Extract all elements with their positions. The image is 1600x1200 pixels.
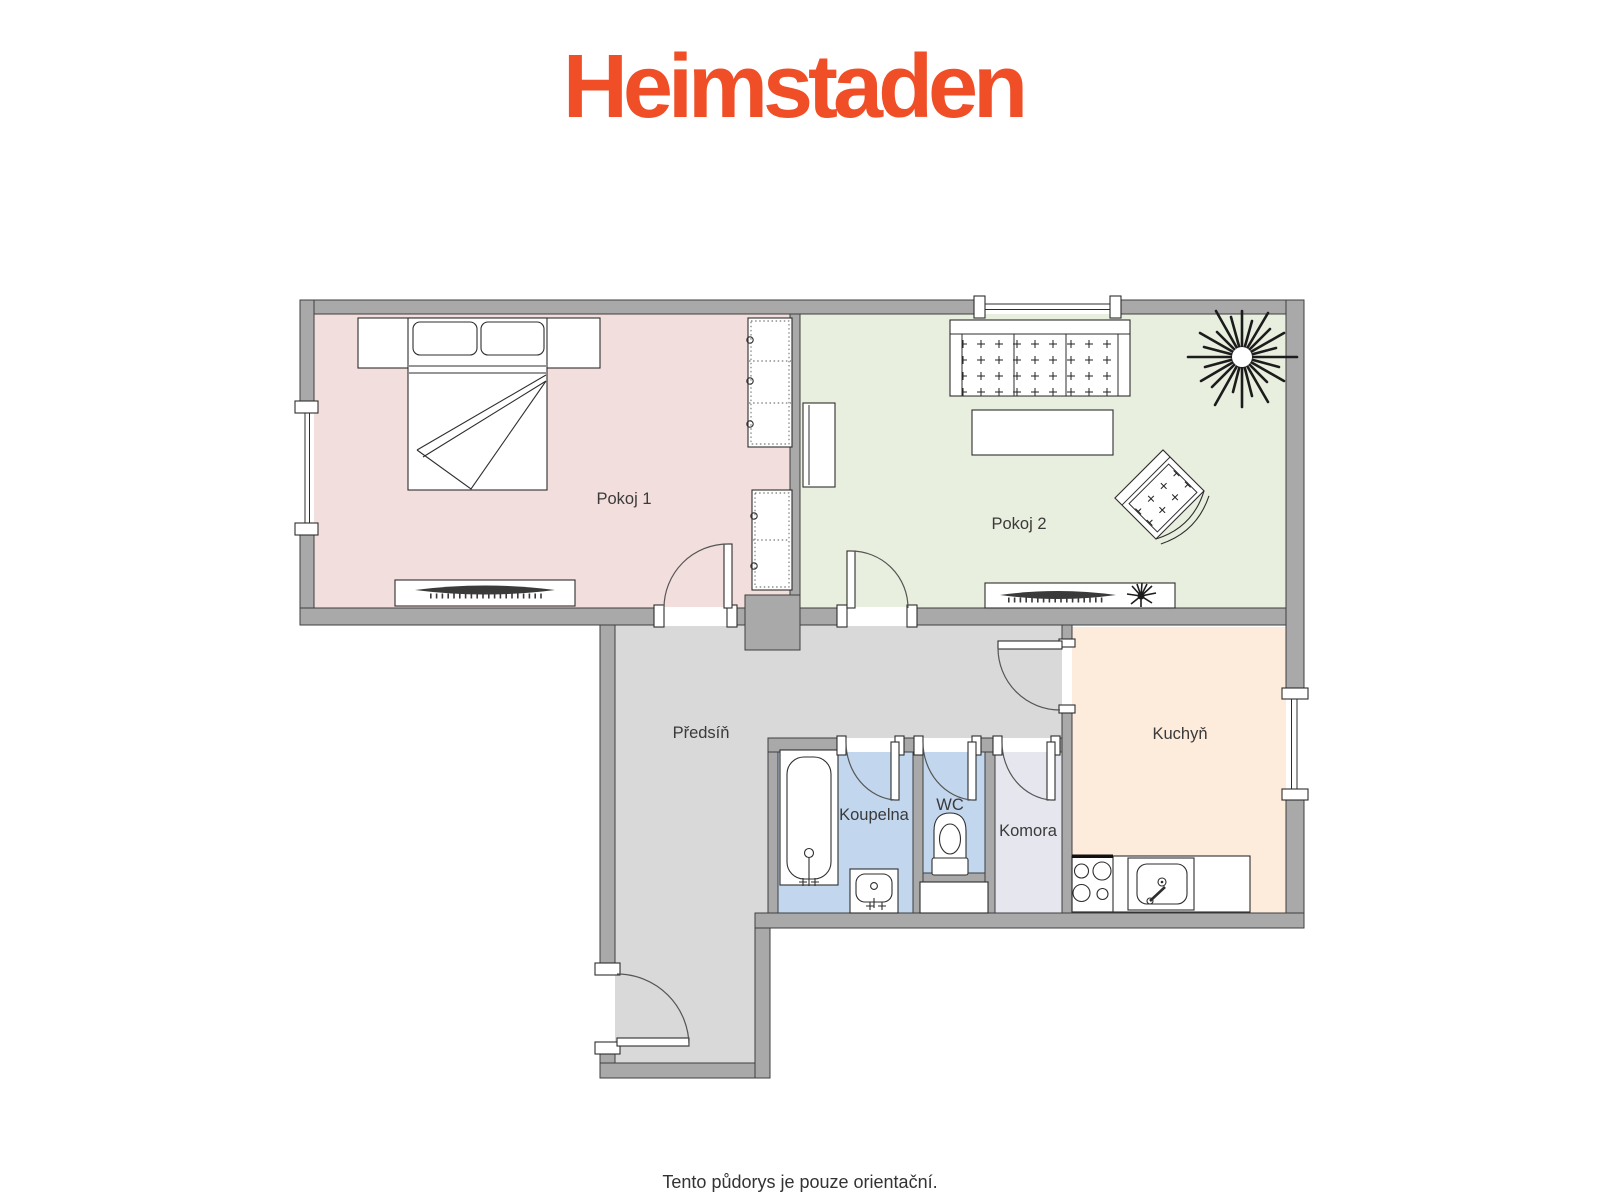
kitchen-counter — [1072, 855, 1250, 913]
radiator — [395, 580, 575, 606]
label-komora: Komora — [999, 822, 1058, 840]
coffee-table — [972, 410, 1113, 455]
cabinet — [803, 403, 835, 487]
page: Heimstaden — [0, 0, 1600, 1200]
caption: Tento půdorys je pouze orientační. — [0, 1172, 1600, 1193]
label-wc: WC — [936, 796, 964, 814]
radiator — [985, 583, 1175, 608]
duct-shaft — [920, 882, 988, 913]
label-pokoj-2: Pokoj 2 — [991, 515, 1046, 533]
washbasin — [850, 869, 898, 913]
label-kuchyn: Kuchyň — [1152, 725, 1207, 743]
floor-plan: Pokoj 1 Pokoj 2 Předsíň Koupelna WC Komo… — [0, 0, 1600, 1200]
sofa — [950, 320, 1130, 396]
wardrobe — [751, 490, 792, 590]
label-predsin: Předsíň — [673, 724, 730, 742]
label-pokoj-1: Pokoj 1 — [596, 490, 651, 508]
bathtub — [780, 750, 838, 886]
wardrobe — [747, 318, 792, 447]
pillow — [481, 322, 544, 355]
chimney-block — [745, 595, 800, 650]
label-koupelna: Koupelna — [839, 806, 910, 824]
toilet — [932, 813, 968, 875]
pillow — [413, 322, 477, 355]
